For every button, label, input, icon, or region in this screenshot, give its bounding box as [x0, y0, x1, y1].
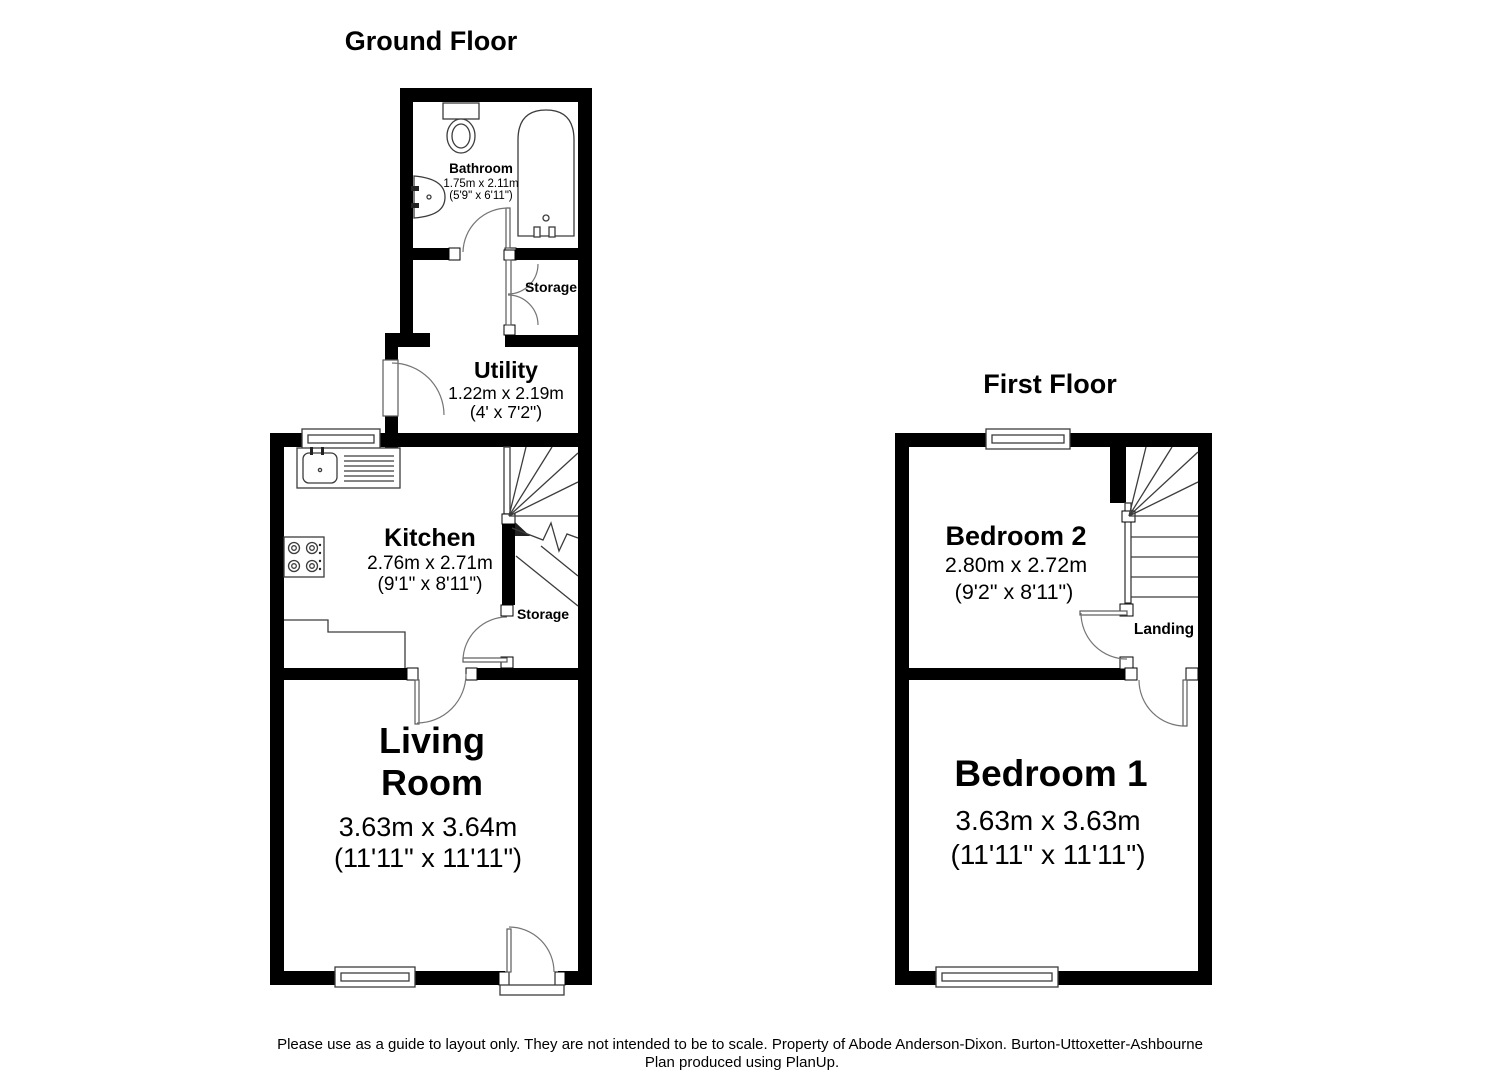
- living-room-dims-imperial: (11'11" x 11'11"): [334, 843, 522, 873]
- bedroom1-dims-metric: 3.63m x 3.63m: [955, 805, 1140, 836]
- first-windows: [936, 429, 1070, 987]
- stair-banister: [504, 447, 510, 514]
- hob: [284, 537, 324, 577]
- first-stairs: [1122, 447, 1198, 603]
- kitchen-dims-metric: 2.76m x 2.71m: [367, 553, 493, 574]
- ground-floor-title: Ground Floor: [345, 26, 518, 56]
- utility-dims-metric: 1.22m x 2.19m: [448, 383, 564, 403]
- door-opening: [1137, 668, 1186, 680]
- wall-segment: [578, 88, 592, 985]
- ground-floor-plan: Ground Floor Bathroom 1.75m x 2.11m (5'9…: [270, 26, 592, 995]
- kitchen-counter-outline: [284, 620, 405, 668]
- utility-dims-imperial: (4' x 7'2"): [470, 402, 542, 422]
- entrance-threshold: [500, 985, 564, 995]
- storage-upper-label: Storage: [525, 279, 577, 295]
- bathroom-label: Bathroom: [449, 161, 513, 176]
- wall-segment: [502, 523, 515, 605]
- floorplan-page: Ground Floor Bathroom 1.75m x 2.11m (5'9…: [0, 0, 1485, 1080]
- living-room-label-line2: Room: [381, 762, 483, 803]
- bedroom1-label: Bedroom 1: [954, 753, 1147, 794]
- wall-segment: [1110, 447, 1126, 503]
- utility-label: Utility: [474, 357, 538, 383]
- stair-winders: [509, 447, 578, 516]
- bathtub: [518, 110, 574, 237]
- bathroom-dims-metric: 1.75m x 2.11m: [443, 178, 518, 190]
- kitchen-label: Kitchen: [384, 524, 476, 552]
- bedroom2-label: Bedroom 2: [945, 521, 1086, 551]
- wall-segment: [895, 433, 909, 985]
- wall-segment: [270, 433, 284, 985]
- ground-windows: [302, 429, 415, 987]
- floorplan-canvas: Ground Floor Bathroom 1.75m x 2.11m (5'9…: [0, 0, 1485, 1080]
- bedroom2-window: [986, 429, 1070, 449]
- wall-segment: [385, 347, 398, 360]
- kitchen-sink-unit: [297, 447, 400, 488]
- wall-segment: [385, 333, 430, 347]
- bedroom1-window: [936, 967, 1058, 987]
- landing-label: Landing: [1134, 621, 1194, 638]
- wall-segment: [400, 88, 413, 333]
- door-opening: [418, 668, 467, 680]
- wall-segment: [400, 88, 592, 102]
- first-floor-plan: First Floor Bedroom 2 2.80m x 2.72m (9'2…: [895, 369, 1212, 987]
- understairs-storage-door: [463, 605, 513, 668]
- disclaimer-line2: Plan produced using PlanUp.: [645, 1054, 839, 1071]
- basin: [411, 176, 445, 218]
- entrance-door: [499, 927, 565, 995]
- disclaimer-line1: Please use as a guide to layout only. Th…: [277, 1036, 1203, 1053]
- stair-winders: [1129, 447, 1198, 516]
- landing-bedroom2-door: [1080, 604, 1133, 669]
- living-room-label-line1: Living: [379, 720, 485, 761]
- storage-understairs-label: Storage: [517, 606, 569, 622]
- bedroom1-dims-imperial: (11'11" x 11'11"): [950, 839, 1145, 870]
- living-room-dims-metric: 3.63m x 3.64m: [339, 812, 518, 842]
- stair-treads: [1131, 537, 1198, 597]
- footer: Please use as a guide to layout only. Th…: [277, 1036, 1203, 1071]
- living-room-window: [335, 967, 415, 987]
- door-opening: [460, 248, 505, 260]
- kitchen-dims-imperial: (9'1" x 8'11"): [378, 574, 483, 595]
- first-floor-title: First Floor: [983, 369, 1117, 399]
- bedroom2-dims-imperial: (9'2" x 8'11"): [955, 580, 1074, 604]
- bedroom2-dims-metric: 2.80m x 2.72m: [945, 553, 1087, 577]
- wall-segment: [505, 335, 578, 347]
- bathroom-dims-imperial: (5'9" x 6'11"): [449, 190, 513, 202]
- utility-entry-door: [383, 360, 444, 416]
- toilet: [443, 103, 479, 153]
- wall-segment: [1198, 433, 1212, 985]
- kitchen-window: [302, 429, 380, 449]
